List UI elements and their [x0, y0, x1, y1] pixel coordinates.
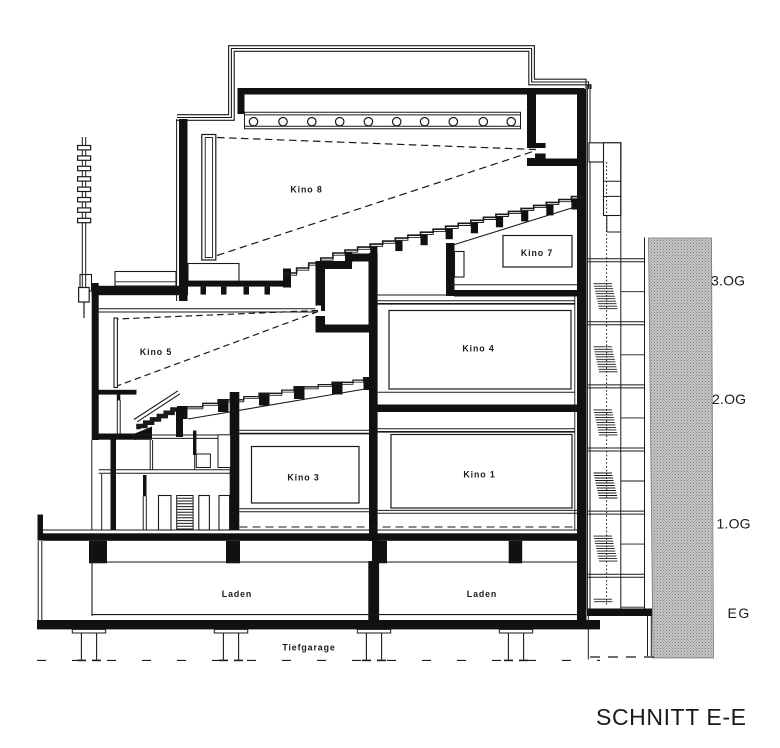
svg-text:Kino 7: Kino 7	[521, 248, 553, 258]
svg-text:1.OG: 1.OG	[717, 516, 751, 532]
svg-text:Kino 3: Kino 3	[287, 473, 319, 483]
svg-text:Laden: Laden	[222, 589, 252, 599]
svg-text:Kino 5: Kino 5	[140, 347, 172, 357]
svg-text:2.OG: 2.OG	[712, 391, 746, 407]
svg-text:Kino 8: Kino 8	[290, 185, 322, 195]
svg-text:EG: EG	[728, 605, 751, 621]
svg-text:3.OG: 3.OG	[711, 273, 745, 289]
svg-text:Kino 4: Kino 4	[462, 344, 494, 354]
svg-text:Kino 1: Kino 1	[463, 470, 495, 480]
svg-text:Laden: Laden	[467, 589, 497, 599]
svg-text:Tiefgarage: Tiefgarage	[282, 643, 335, 653]
svg-text:SCHNITT E-E: SCHNITT E-E	[596, 704, 747, 730]
